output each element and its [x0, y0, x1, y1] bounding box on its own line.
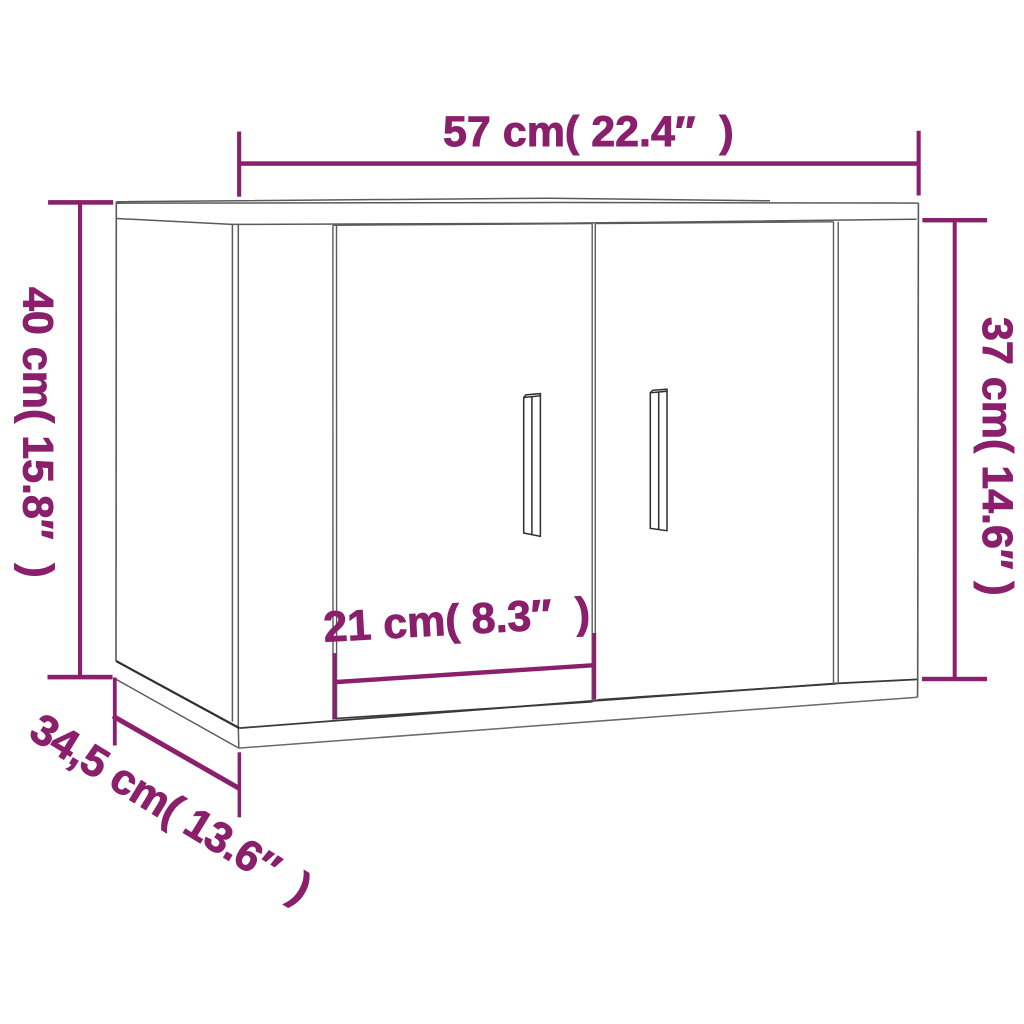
svg-text:40 cm( 15.8″ ): 40 cm( 15.8″ ) — [14, 287, 62, 578]
svg-text:37 cm( 14.6″ ): 37 cm( 14.6″ ) — [973, 317, 1021, 596]
svg-text:57 cm( 22.4″ ): 57 cm( 22.4″ ) — [443, 108, 734, 156]
